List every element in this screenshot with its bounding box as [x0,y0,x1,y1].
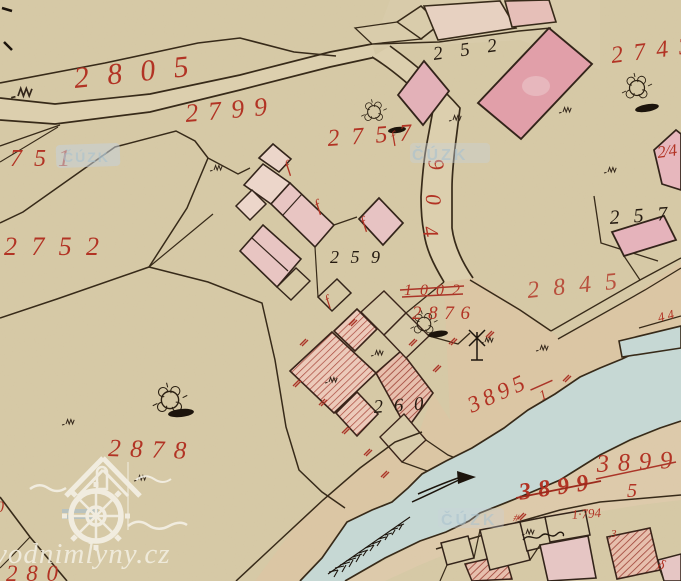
svg-text:259: 259 [330,247,380,267]
svg-text:0: 0 [0,499,4,516]
svg-text:260: 260 [373,394,425,418]
svg-text:ČÚZK: ČÚZK [412,145,468,164]
svg-text:ČÚZK: ČÚZK [63,148,110,165]
svg-text:5: 5 [627,480,637,502]
svg-text:0: 0 [421,193,447,206]
svg-text:1·794: 1·794 [571,505,602,522]
svg-text:vodnimlyny.cz: vodnimlyny.cz [0,538,170,570]
svg-text:257: 257 [609,203,669,229]
svg-text:ČÚZK: ČÚZK [441,510,497,529]
svg-text:2⁄4: 2⁄4 [656,140,679,162]
svg-text:3: 3 [610,528,617,540]
